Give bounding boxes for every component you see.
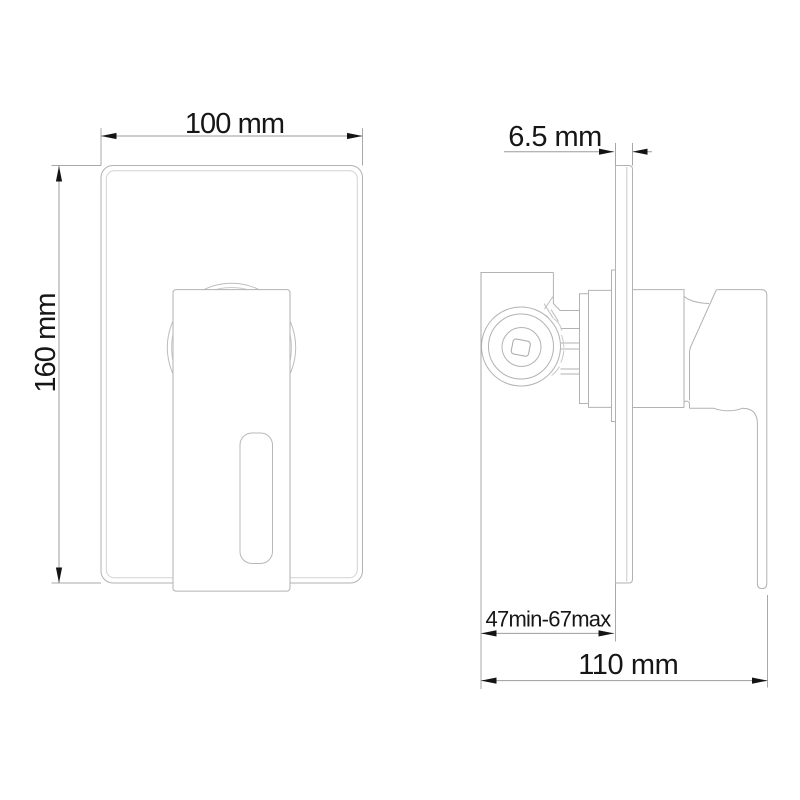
svg-text:47min-67max: 47min-67max (485, 607, 611, 632)
svg-text:160 mm: 160 mm (30, 293, 62, 392)
svg-text:100 mm: 100 mm (185, 108, 284, 140)
svg-text:6.5 mm: 6.5 mm (508, 121, 601, 153)
svg-text:110 mm: 110 mm (578, 649, 678, 681)
